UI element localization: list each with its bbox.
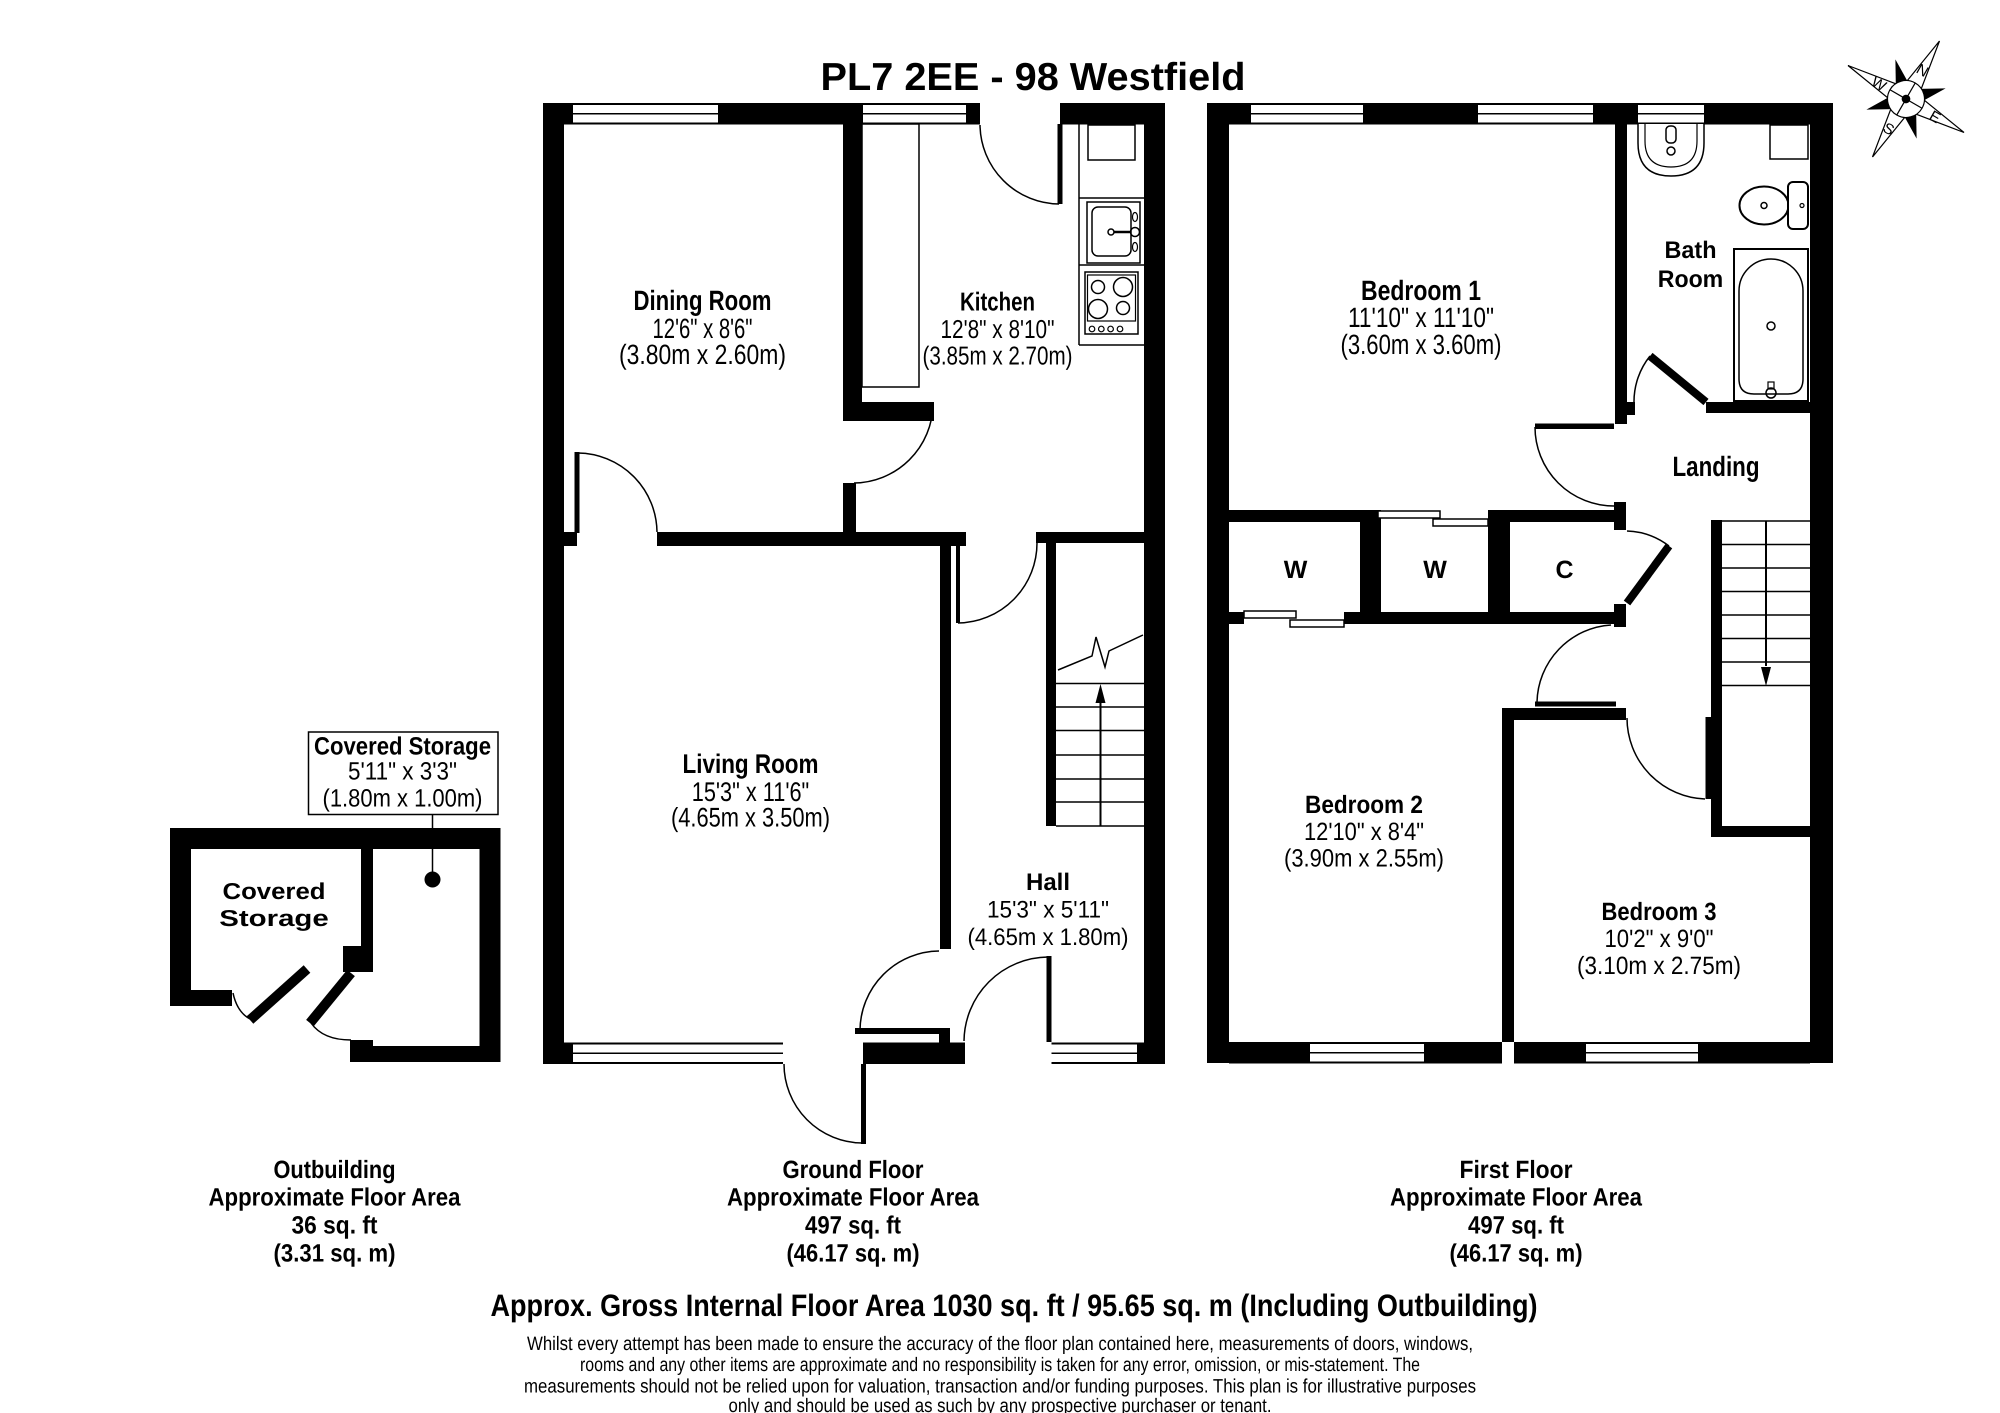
svg-text:12'10" x 8'4": 12'10" x 8'4" bbox=[1304, 818, 1424, 846]
svg-text:(46.17 sq. m): (46.17 sq. m) bbox=[787, 1240, 920, 1268]
svg-text:Hall: Hall bbox=[1026, 869, 1070, 896]
svg-text:(3.90m x 2.55m): (3.90m x 2.55m) bbox=[1284, 845, 1444, 873]
svg-text:First Floor: First Floor bbox=[1460, 1156, 1573, 1184]
svg-text:12'8" x 8'10": 12'8" x 8'10" bbox=[941, 314, 1055, 344]
svg-text:Outbuilding: Outbuilding bbox=[274, 1156, 396, 1184]
svg-text:(3.10m x 2.75m): (3.10m x 2.75m) bbox=[1577, 952, 1741, 980]
svg-text:C: C bbox=[1555, 556, 1573, 584]
svg-text:Bath: Bath bbox=[1665, 237, 1717, 264]
svg-text:5'11" x 3'3": 5'11" x 3'3" bbox=[348, 758, 457, 786]
svg-text:(1.80m x 1.00m): (1.80m x 1.00m) bbox=[323, 785, 483, 813]
svg-text:Storage: Storage bbox=[219, 905, 329, 931]
svg-text:Approximate Floor Area: Approximate Floor Area bbox=[727, 1184, 980, 1212]
svg-text:PL7 2EE - 98 Westfield: PL7 2EE - 98 Westfield bbox=[821, 56, 1246, 99]
svg-text:only and should be used as suc: only and should be used as such by any p… bbox=[729, 1395, 1272, 1413]
svg-text:Whilst every attempt has been: Whilst every attempt has been made to en… bbox=[527, 1333, 1473, 1355]
svg-text:Approx. Gross Internal Floor A: Approx. Gross Internal Floor Area 1030 s… bbox=[491, 1288, 1538, 1323]
svg-text:W: W bbox=[1423, 556, 1447, 584]
svg-text:497 sq. ft: 497 sq. ft bbox=[1468, 1212, 1565, 1240]
svg-text:Kitchen: Kitchen bbox=[960, 287, 1035, 317]
svg-text:(46.17 sq. m): (46.17 sq. m) bbox=[1450, 1240, 1583, 1268]
svg-text:(3.60m x 3.60m): (3.60m x 3.60m) bbox=[1341, 329, 1502, 360]
svg-text:Bedroom 2: Bedroom 2 bbox=[1305, 791, 1423, 819]
svg-text:(3.80m x 2.60m): (3.80m x 2.60m) bbox=[619, 339, 786, 370]
svg-text:W: W bbox=[1284, 556, 1308, 584]
svg-text:(4.65m x 1.80m): (4.65m x 1.80m) bbox=[968, 924, 1129, 951]
svg-text:Bedroom 3: Bedroom 3 bbox=[1602, 898, 1717, 926]
svg-text:Covered Storage: Covered Storage bbox=[314, 733, 491, 761]
svg-text:36 sq. ft: 36 sq. ft bbox=[292, 1212, 379, 1240]
svg-text:Living Room: Living Room bbox=[683, 749, 819, 779]
svg-text:15'3" x 5'11": 15'3" x 5'11" bbox=[987, 897, 1109, 924]
svg-text:(4.65m x 3.50m): (4.65m x 3.50m) bbox=[671, 803, 830, 833]
svg-text:(3.85m x 2.70m): (3.85m x 2.70m) bbox=[923, 341, 1073, 371]
svg-text:10'2" x 9'0": 10'2" x 9'0" bbox=[1605, 925, 1714, 953]
svg-text:Approximate Floor Area: Approximate Floor Area bbox=[1390, 1184, 1643, 1212]
svg-text:Room: Room bbox=[1658, 266, 1724, 293]
svg-text:497 sq. ft: 497 sq. ft bbox=[805, 1212, 902, 1240]
svg-text:rooms and any other items are: rooms and any other items are approximat… bbox=[580, 1354, 1420, 1376]
svg-text:(3.31 sq. m): (3.31 sq. m) bbox=[274, 1240, 396, 1268]
svg-text:Ground Floor: Ground Floor bbox=[783, 1156, 924, 1184]
svg-text:Covered: Covered bbox=[223, 878, 326, 904]
svg-text:Landing: Landing bbox=[1673, 451, 1760, 482]
svg-text:Dining Room: Dining Room bbox=[634, 285, 772, 316]
svg-text:Approximate Floor Area: Approximate Floor Area bbox=[209, 1184, 462, 1212]
